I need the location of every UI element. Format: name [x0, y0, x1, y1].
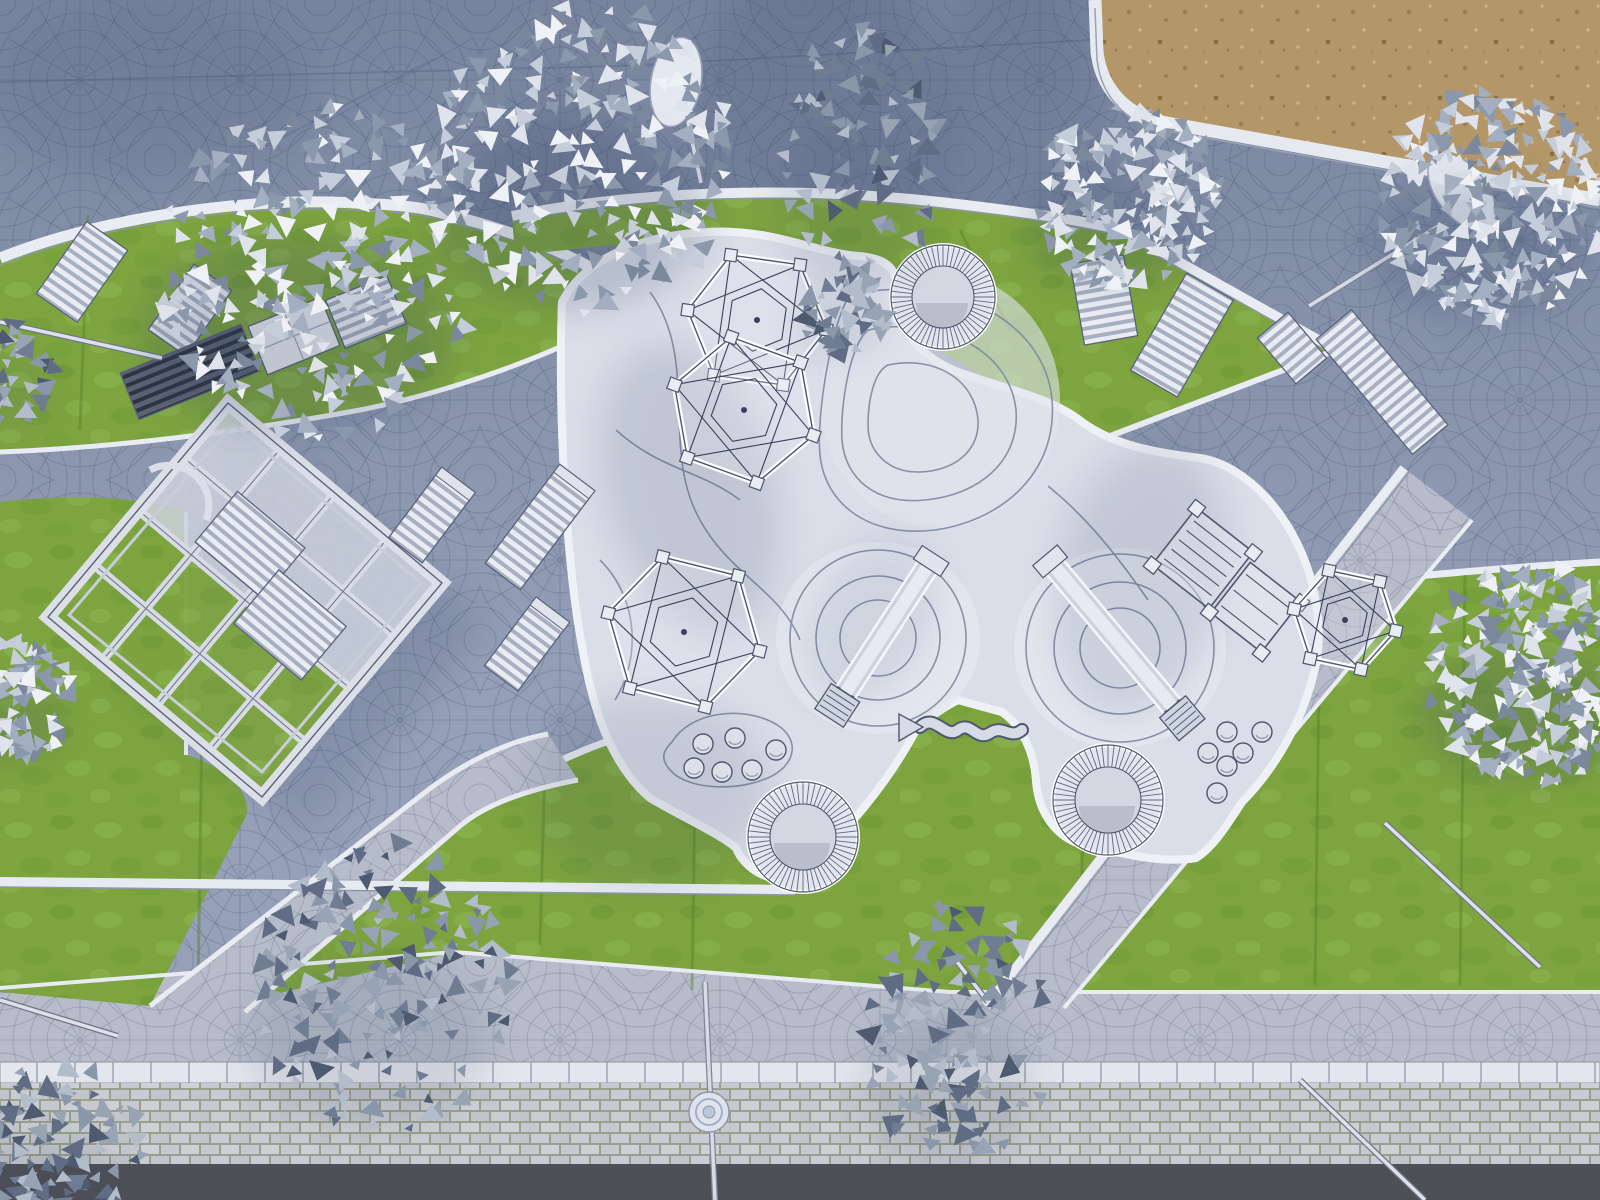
aerial-playground-render — [0, 0, 1600, 1200]
ring-top — [891, 245, 995, 349]
ring-bottom-left — [748, 782, 858, 892]
wall-coping — [0, 1062, 1600, 1083]
stone-wall — [0, 1083, 1600, 1164]
asphalt-road — [0, 1164, 1600, 1200]
ring-bottom-right — [1053, 745, 1163, 855]
render-stage — [0, 0, 1600, 1200]
